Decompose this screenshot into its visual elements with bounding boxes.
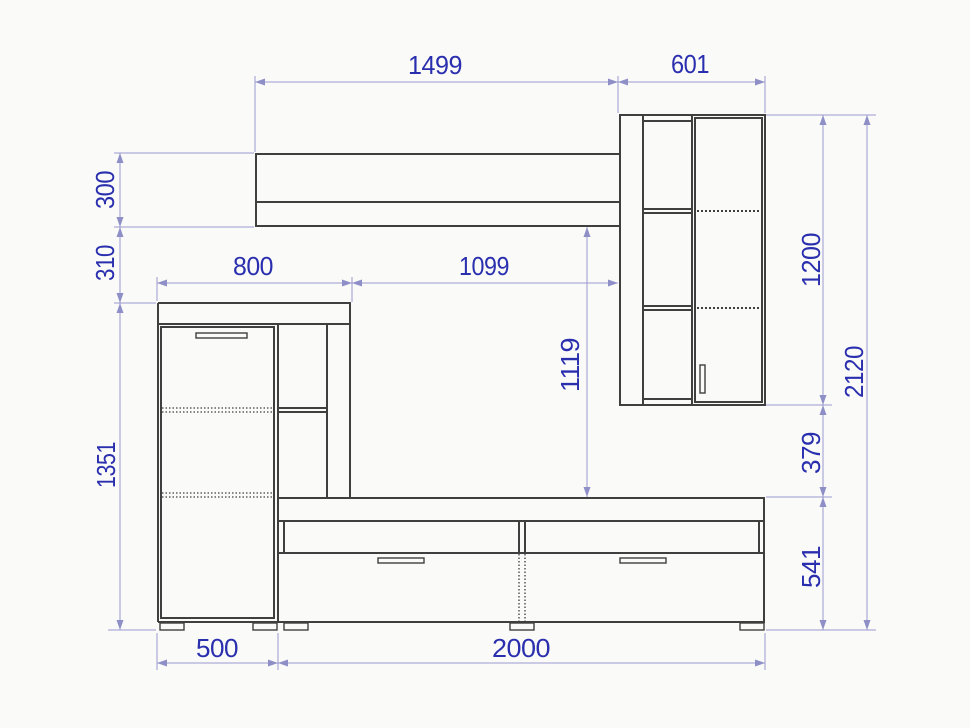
dim-tv-stand-width-label: 2000 — [492, 633, 550, 663]
dim-arrow — [117, 217, 124, 227]
cabinet-foot — [740, 623, 764, 630]
dim-gap-cabinet-stand-label: 379 — [796, 432, 826, 474]
dim-arrow — [584, 227, 591, 237]
dimension-annotations: 1499 601 800 1099 500 2000 300 310 1351 … — [90, 49, 876, 670]
dim-arrow — [820, 405, 827, 415]
dim-arrow — [117, 293, 124, 303]
dim-arrow — [117, 620, 124, 630]
cabinet-foot — [160, 623, 184, 630]
dim-left-cabinet-height-label: 1351 — [91, 442, 121, 488]
dim-arrow — [820, 497, 827, 507]
left-cabinet-door-handle — [196, 333, 247, 338]
wall-cabinet-door — [695, 118, 762, 402]
dim-shelf-height-label: 300 — [90, 171, 120, 209]
wall-shelf — [256, 154, 620, 226]
dim-shelf-width-label: 1499 — [408, 50, 462, 80]
dim-shelf-gap-label: 310 — [90, 245, 120, 281]
drawer-handle — [378, 558, 424, 563]
left-cabinet-door — [161, 327, 274, 618]
dim-arrow — [255, 79, 265, 86]
dim-mid-span-label: 1099 — [459, 251, 509, 281]
dim-arrow — [157, 280, 167, 287]
dim-arrow — [117, 227, 124, 237]
dim-arrow — [864, 115, 871, 125]
dim-arrow — [117, 153, 124, 163]
technical-drawing: 1499 601 800 1099 500 2000 300 310 1351 … — [0, 0, 970, 728]
dim-left-door-width-label: 500 — [196, 633, 238, 663]
dim-arrow — [755, 660, 765, 667]
drawing-canvas: 1499 601 800 1099 500 2000 300 310 1351 … — [0, 0, 970, 728]
dim-left-cabinet-width-label: 800 — [233, 251, 273, 281]
furniture-outline — [158, 115, 765, 630]
cabinet-foot — [284, 623, 308, 630]
dim-arrow — [864, 620, 871, 630]
dim-arrow — [608, 280, 618, 287]
dim-arrow — [608, 79, 618, 86]
cabinet-foot — [510, 623, 534, 630]
dim-arrow — [268, 660, 278, 667]
dim-arrow — [278, 660, 288, 667]
dim-arrow — [755, 79, 765, 86]
dim-wall-cabinet-width-label: 601 — [671, 49, 709, 79]
dim-arrow — [820, 115, 827, 125]
dim-arrow — [117, 303, 124, 313]
dim-wall-cabinet-height-label: 1200 — [796, 233, 826, 287]
dim-arrow — [820, 620, 827, 630]
dim-total-height-label: 2120 — [839, 346, 869, 398]
dim-arrow — [342, 280, 352, 287]
cabinet-foot — [253, 623, 277, 630]
dim-arrow — [157, 660, 167, 667]
dim-arrow — [618, 79, 628, 86]
wall-cabinet-door-handle — [700, 365, 705, 393]
drawer-handle — [620, 558, 666, 563]
dim-arrow — [820, 395, 827, 405]
dim-arrow — [584, 487, 591, 497]
dim-shelf-to-stand-label: 1119 — [555, 338, 585, 392]
dim-arrow — [820, 487, 827, 497]
dim-arrow — [352, 280, 362, 287]
dim-tv-stand-height-label: 541 — [796, 546, 826, 588]
